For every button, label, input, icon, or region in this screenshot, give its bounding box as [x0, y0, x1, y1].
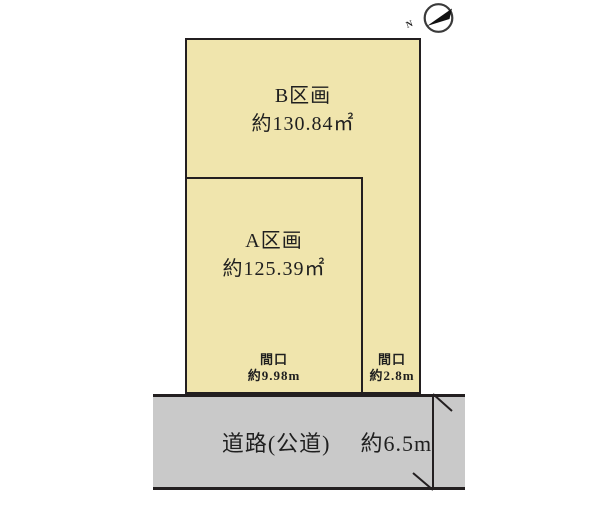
plot-a-name: A区画: [187, 227, 361, 255]
road-width-dimension-line: [400, 392, 470, 494]
frontage-b-label: 間口 約2.8m: [363, 352, 421, 384]
plot-b-area: 約130.84㎡: [187, 110, 419, 138]
compass-north-label: N: [404, 18, 414, 30]
frontage-a-title: 間口: [185, 352, 363, 368]
compass-icon: [416, 1, 460, 37]
plot-b-label: B区画 約130.84㎡: [187, 40, 419, 138]
frontage-b-value: 約2.8m: [363, 368, 421, 384]
frontage-a-label: 間口 約9.98m: [185, 352, 363, 384]
land-plot-diagram: N B区画 約130.84㎡ A区画 約125.39㎡ 間口 約9.98m 間口…: [0, 0, 600, 519]
plot-a-label: A区画 約125.39㎡: [187, 179, 361, 283]
plot-a-area: 約125.39㎡: [187, 255, 361, 283]
frontage-a-value: 約9.98m: [185, 368, 363, 384]
frontage-b-title: 間口: [363, 352, 421, 368]
road-label: 道路(公道): [222, 426, 331, 458]
plot-b-name: B区画: [187, 82, 419, 110]
